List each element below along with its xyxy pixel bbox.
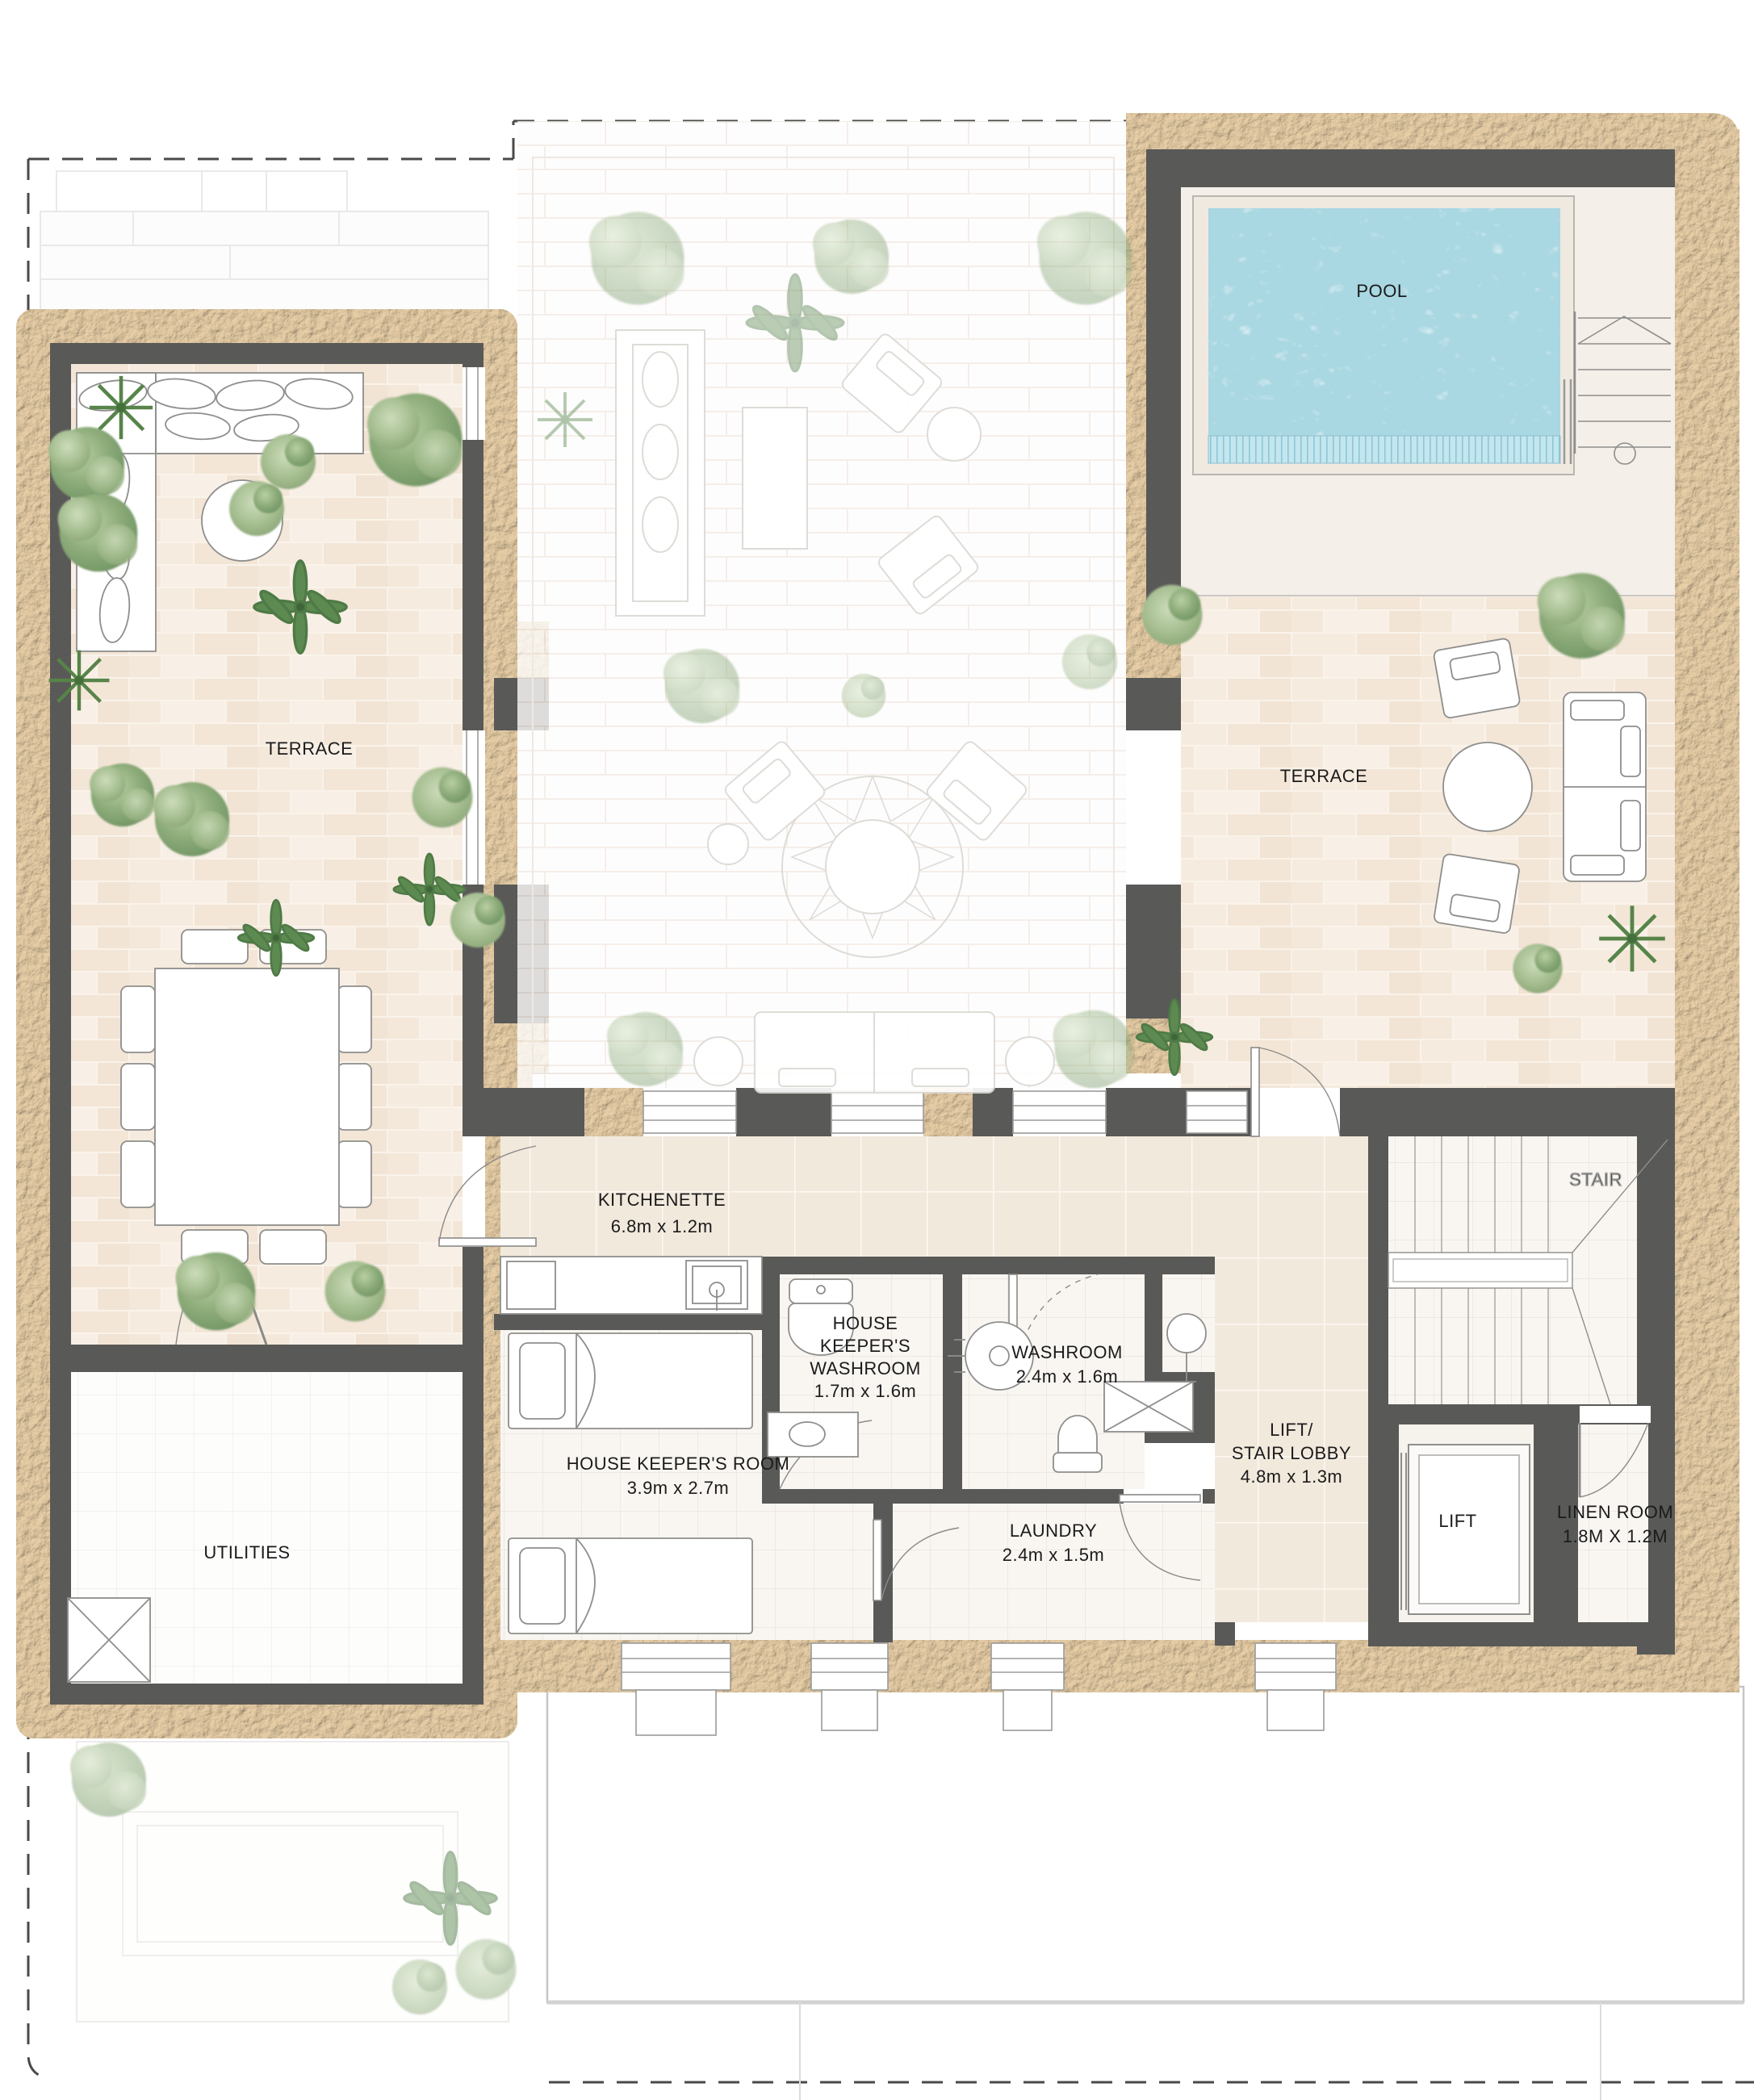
shower-icon [1167,1314,1206,1353]
room-label-lobby-2: STAIR LOBBY [1232,1443,1351,1463]
room-dims-hk-room: 3.9m x 2.7m [627,1478,730,1498]
room-label-terrace-left: TERRACE [266,738,354,759]
room-label-hk-washroom-1: HOUSE [833,1313,898,1333]
tree-icon [325,1261,386,1322]
room-dims-lobby: 4.8m x 1.3m [1241,1466,1343,1487]
room-label-lift: LIFT [1438,1511,1476,1531]
room-label-pool: POOL [1356,281,1407,301]
room-label-kitchenette: KITCHENETTE [598,1190,726,1210]
tree-icon [450,893,505,948]
room-dims-laundry: 2.4m x 1.5m [1003,1545,1105,1565]
room-label-hk-room: HOUSE KEEPER'S ROOM [567,1454,790,1474]
room-label-utilities: UTILITIES [203,1542,290,1562]
tree-icon [1142,585,1203,646]
room-label-washroom: WASHROOM [1011,1342,1123,1362]
fern-icon [1599,906,1665,972]
tree-icon [229,481,284,536]
dining-table [155,968,339,1225]
floor-plan-canvas: POOL STAIR [0,0,1754,2100]
room-label-lobby-1: LIFT/ [1270,1420,1313,1440]
room-label-laundry: LAUNDRY [1010,1521,1097,1541]
lift: LIFT [1401,1445,1530,1614]
tree-icon [1513,943,1562,993]
room-label-hk-washroom-2: KEEPER'S [820,1336,910,1356]
room-label-stair: STAIR [1569,1169,1622,1190]
floor-plan: POOL STAIR [0,0,1754,2100]
bed [509,1538,752,1634]
fern-icon [49,650,110,711]
armchair [1433,638,1520,718]
room-dims-washroom: 2.4m x 1.6m [1016,1366,1119,1387]
pool: POOL [1193,196,1574,475]
room-dims-hk-washroom: 1.7m x 1.6m [814,1381,917,1401]
sofa-2seat [1564,692,1646,881]
room-label-terrace-right: TERRACE [1280,766,1368,786]
round-table [1443,743,1532,831]
room-label-hk-washroom-3: WASHROOM [810,1358,921,1378]
tree-icon [261,434,316,489]
armchair [1434,853,1520,934]
faded-garden-bottomleft [70,1742,516,2022]
basin-icon [789,1422,825,1446]
tree-icon [412,768,473,828]
dining-set [121,930,371,1264]
bed [509,1333,752,1429]
room-label-linen: LINEN ROOM [1557,1502,1673,1522]
room-dims-linen: 1.8M X 1.2M [1563,1526,1668,1546]
room-dims-kitchenette: 6.8m x 1.2m [611,1216,714,1236]
